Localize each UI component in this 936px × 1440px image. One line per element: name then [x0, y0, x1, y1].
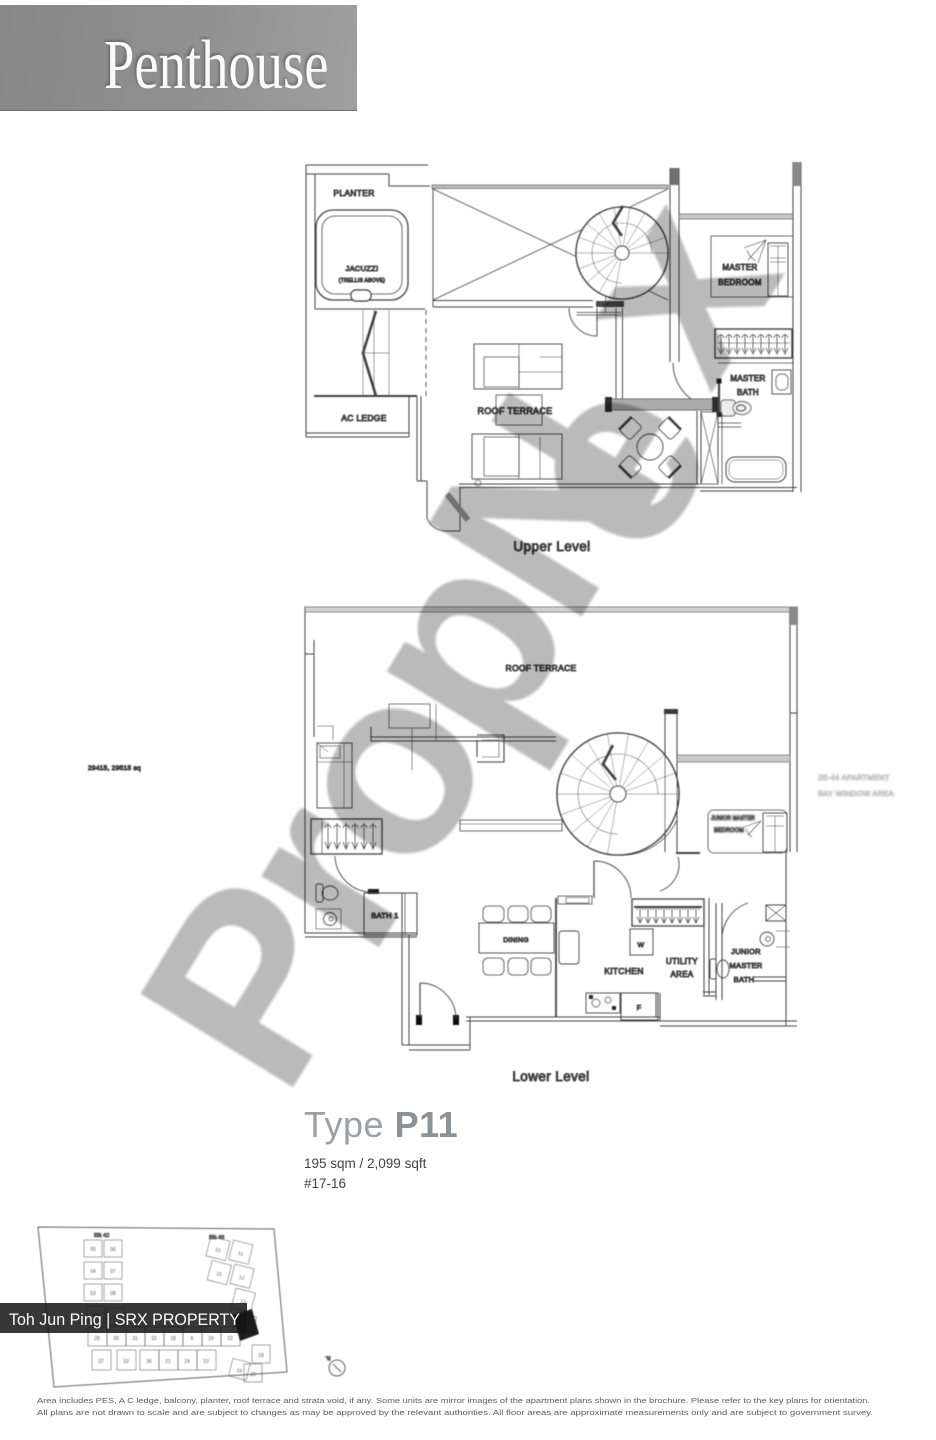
svg-text:Toh Jun Ping | SRX PROPERTY: Toh Jun Ping | SRX PROPERTY — [9, 1310, 240, 1329]
svg-text:DINING: DINING — [503, 937, 529, 944]
svg-text:21: 21 — [165, 1359, 171, 1365]
svg-text:30: 30 — [113, 1336, 119, 1342]
svg-text:03: 03 — [90, 1291, 96, 1297]
svg-text:BATH: BATH — [734, 975, 755, 984]
svg-text:#17-16: #17-16 — [304, 1176, 346, 1191]
svg-text:11: 11 — [237, 1251, 244, 1258]
svg-text:BAY WINDOW AREA: BAY WINDOW AREA — [818, 789, 894, 798]
svg-text:37: 37 — [98, 1359, 104, 1365]
svg-text:Blk 42: Blk 42 — [94, 1233, 109, 1239]
svg-text:All plans are not drawn to sca: All plans are not drawn to scale and are… — [37, 1408, 873, 1417]
svg-text:29415, 29515 sq: 29415, 29515 sq — [88, 765, 141, 772]
svg-text:15: 15 — [215, 1271, 222, 1278]
svg-text:08: 08 — [110, 1291, 116, 1297]
svg-text:31: 31 — [132, 1336, 138, 1342]
svg-text:6: 6 — [191, 1336, 194, 1342]
svg-text:12: 12 — [238, 1275, 245, 1282]
svg-text:Area includes PES, A C ledge,: Area includes PES, A C ledge, balcony, p… — [37, 1396, 870, 1405]
svg-text:19: 19 — [236, 1368, 243, 1375]
svg-text:MASTER: MASTER — [729, 961, 762, 970]
svg-text:22: 22 — [227, 1336, 233, 1342]
svg-text:33: 33 — [123, 1359, 129, 1365]
svg-text:Lower Level: Lower Level — [512, 1069, 589, 1084]
svg-text:AREA: AREA — [671, 970, 694, 979]
svg-text:PLANTER: PLANTER — [333, 188, 374, 198]
svg-text:18: 18 — [258, 1353, 264, 1359]
svg-text:20: 20 — [250, 1372, 256, 1378]
svg-text:UTILITY: UTILITY — [666, 957, 698, 966]
svg-text:2E-44 APARTMENT: 2E-44 APARTMENT — [818, 773, 890, 782]
svg-text:195 sqm / 2,099 sqft: 195 sqm / 2,099 sqft — [304, 1156, 427, 1171]
svg-text:04: 04 — [90, 1269, 96, 1275]
svg-text:32: 32 — [151, 1336, 157, 1342]
svg-text:JACUZZI: JACUZZI — [346, 264, 379, 273]
svg-text:BEDROOM: BEDROOM — [714, 827, 744, 834]
svg-text:07: 07 — [110, 1269, 116, 1275]
svg-text:05: 05 — [90, 1247, 96, 1253]
svg-text:W: W — [638, 942, 645, 949]
svg-text:N: N — [327, 1356, 331, 1362]
svg-text:KITCHEN: KITCHEN — [604, 966, 643, 976]
svg-text:06: 06 — [110, 1247, 116, 1253]
svg-text:PropNex: PropNex — [79, 148, 865, 1147]
svg-text:29: 29 — [208, 1336, 214, 1342]
svg-text:36: 36 — [146, 1359, 152, 1365]
svg-text:JUNIOR MASTER: JUNIOR MASTER — [711, 815, 755, 822]
svg-text:28: 28 — [94, 1336, 100, 1342]
svg-text:23: 23 — [203, 1359, 209, 1365]
svg-text:Type P11: Type P11 — [304, 1104, 458, 1145]
svg-text:F: F — [637, 1005, 642, 1012]
svg-text:10: 10 — [214, 1247, 221, 1254]
svg-text:JUNIOR: JUNIOR — [731, 947, 761, 956]
svg-text:(TRELLIS ABOVE): (TRELLIS ABOVE) — [339, 278, 385, 284]
svg-text:AC LEDGE: AC LEDGE — [341, 413, 386, 423]
svg-text:24: 24 — [184, 1359, 190, 1365]
svg-text:18: 18 — [170, 1336, 176, 1342]
